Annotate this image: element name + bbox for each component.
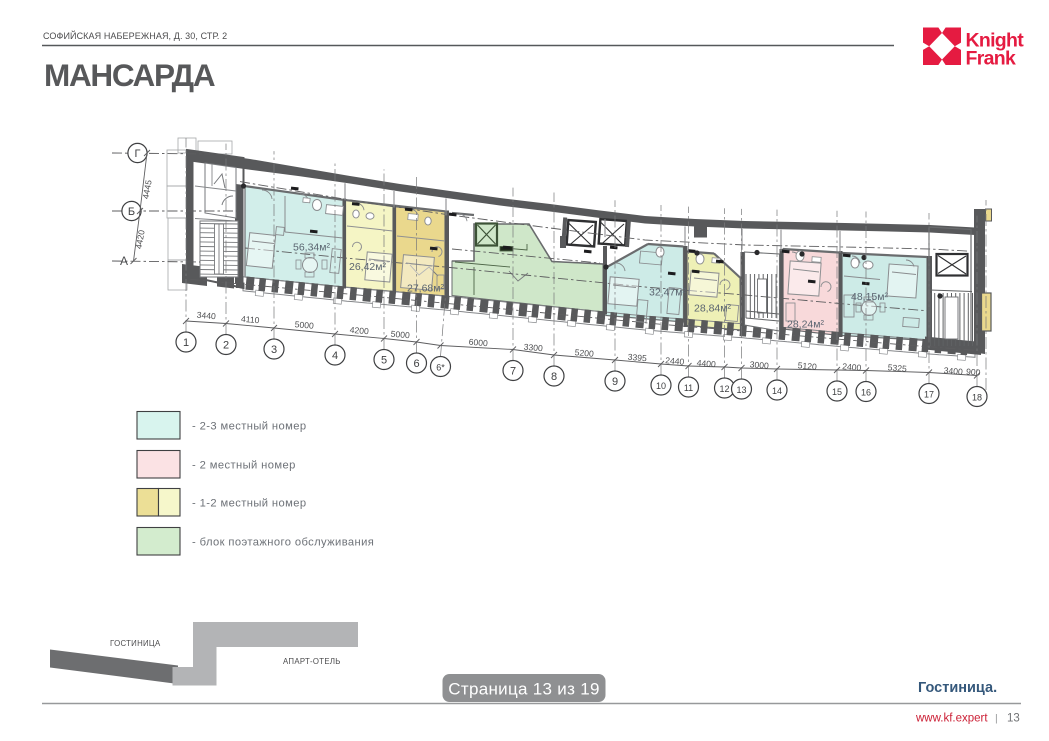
svg-text:15: 15	[832, 387, 842, 397]
svg-text:4: 4	[332, 350, 338, 362]
svg-text:5200: 5200	[574, 347, 594, 359]
svg-text:4400: 4400	[696, 358, 716, 370]
svg-text:5325: 5325	[887, 362, 907, 374]
svg-text:18: 18	[972, 392, 982, 402]
svg-text:10: 10	[656, 381, 666, 391]
svg-text:8: 8	[551, 371, 557, 383]
svg-text:32,47м²: 32,47м²	[649, 287, 686, 299]
svg-text:3440: 3440	[196, 310, 216, 322]
svg-text:28,24м²: 28,24м²	[787, 319, 824, 331]
svg-text:26,42м²: 26,42м²	[349, 261, 386, 273]
svg-text:5120: 5120	[797, 360, 817, 372]
svg-text:14: 14	[772, 386, 782, 396]
svg-text:900: 900	[966, 366, 981, 377]
svg-text:11: 11	[684, 383, 693, 393]
svg-text:3300: 3300	[523, 342, 543, 354]
svg-text:3395: 3395	[627, 352, 647, 364]
svg-text:А: А	[120, 254, 128, 268]
svg-text:СОФИЙСКАЯ НАБЕРЕЖНАЯ, Д. 30, С: СОФИЙСКАЯ НАБЕРЕЖНАЯ, Д. 30, СТР. 2	[43, 30, 227, 41]
svg-text:АПАРТ-ОТЕЛЬ: АПАРТ-ОТЕЛЬ	[283, 657, 341, 666]
svg-text:9: 9	[612, 376, 618, 388]
svg-text:Frank: Frank	[966, 48, 1016, 70]
svg-text:16: 16	[861, 387, 871, 397]
svg-text:МАНСАРДА: МАНСАРДА	[44, 57, 215, 93]
svg-text:Б: Б	[128, 206, 135, 218]
svg-text:17: 17	[924, 389, 934, 399]
svg-text:2440: 2440	[665, 355, 685, 367]
svg-text:- 2-3 местный номер: - 2-3 местный номер	[192, 421, 306, 433]
svg-text:1: 1	[183, 337, 189, 349]
svg-text:27,68м²: 27,68м²	[407, 283, 444, 295]
svg-text:www.kf.expert: www.kf.expert	[915, 713, 988, 725]
svg-text:5: 5	[381, 354, 387, 366]
svg-text:5000: 5000	[294, 319, 314, 331]
svg-text:13: 13	[736, 385, 746, 395]
svg-text:4200: 4200	[349, 325, 369, 337]
svg-text:6000: 6000	[468, 337, 488, 349]
svg-text:- 1-2 местный номер: - 1-2 местный номер	[192, 498, 306, 510]
svg-text:13: 13	[1007, 713, 1020, 725]
svg-text:- 2 местный номер: - 2 местный номер	[192, 460, 296, 472]
svg-text:Страница 13 из 19: Страница 13 из 19	[448, 680, 599, 699]
svg-text:7: 7	[510, 365, 516, 377]
svg-text:|: |	[995, 713, 998, 725]
svg-text:3400: 3400	[943, 365, 963, 377]
svg-text:6*: 6*	[436, 362, 445, 372]
svg-text:4110: 4110	[241, 314, 261, 326]
svg-text:56,34м²: 56,34м²	[293, 242, 330, 254]
svg-text:2400: 2400	[842, 361, 862, 373]
svg-text:Гостиница.: Гостиница.	[918, 680, 997, 696]
svg-text:28,84м²: 28,84м²	[694, 303, 731, 315]
svg-text:3: 3	[271, 344, 277, 356]
svg-text:Г: Г	[135, 148, 141, 160]
svg-text:6: 6	[413, 358, 419, 370]
svg-text:3000: 3000	[749, 359, 769, 371]
svg-text:2: 2	[223, 339, 229, 351]
svg-text:12: 12	[719, 384, 729, 394]
svg-text:ГОСТИНИЦА: ГОСТИНИЦА	[110, 639, 161, 648]
svg-text:48,15м²: 48,15м²	[851, 291, 888, 303]
svg-text:5000: 5000	[390, 329, 410, 341]
svg-text:- блок поэтажного обслуживания: - блок поэтажного обслуживания	[192, 537, 374, 549]
